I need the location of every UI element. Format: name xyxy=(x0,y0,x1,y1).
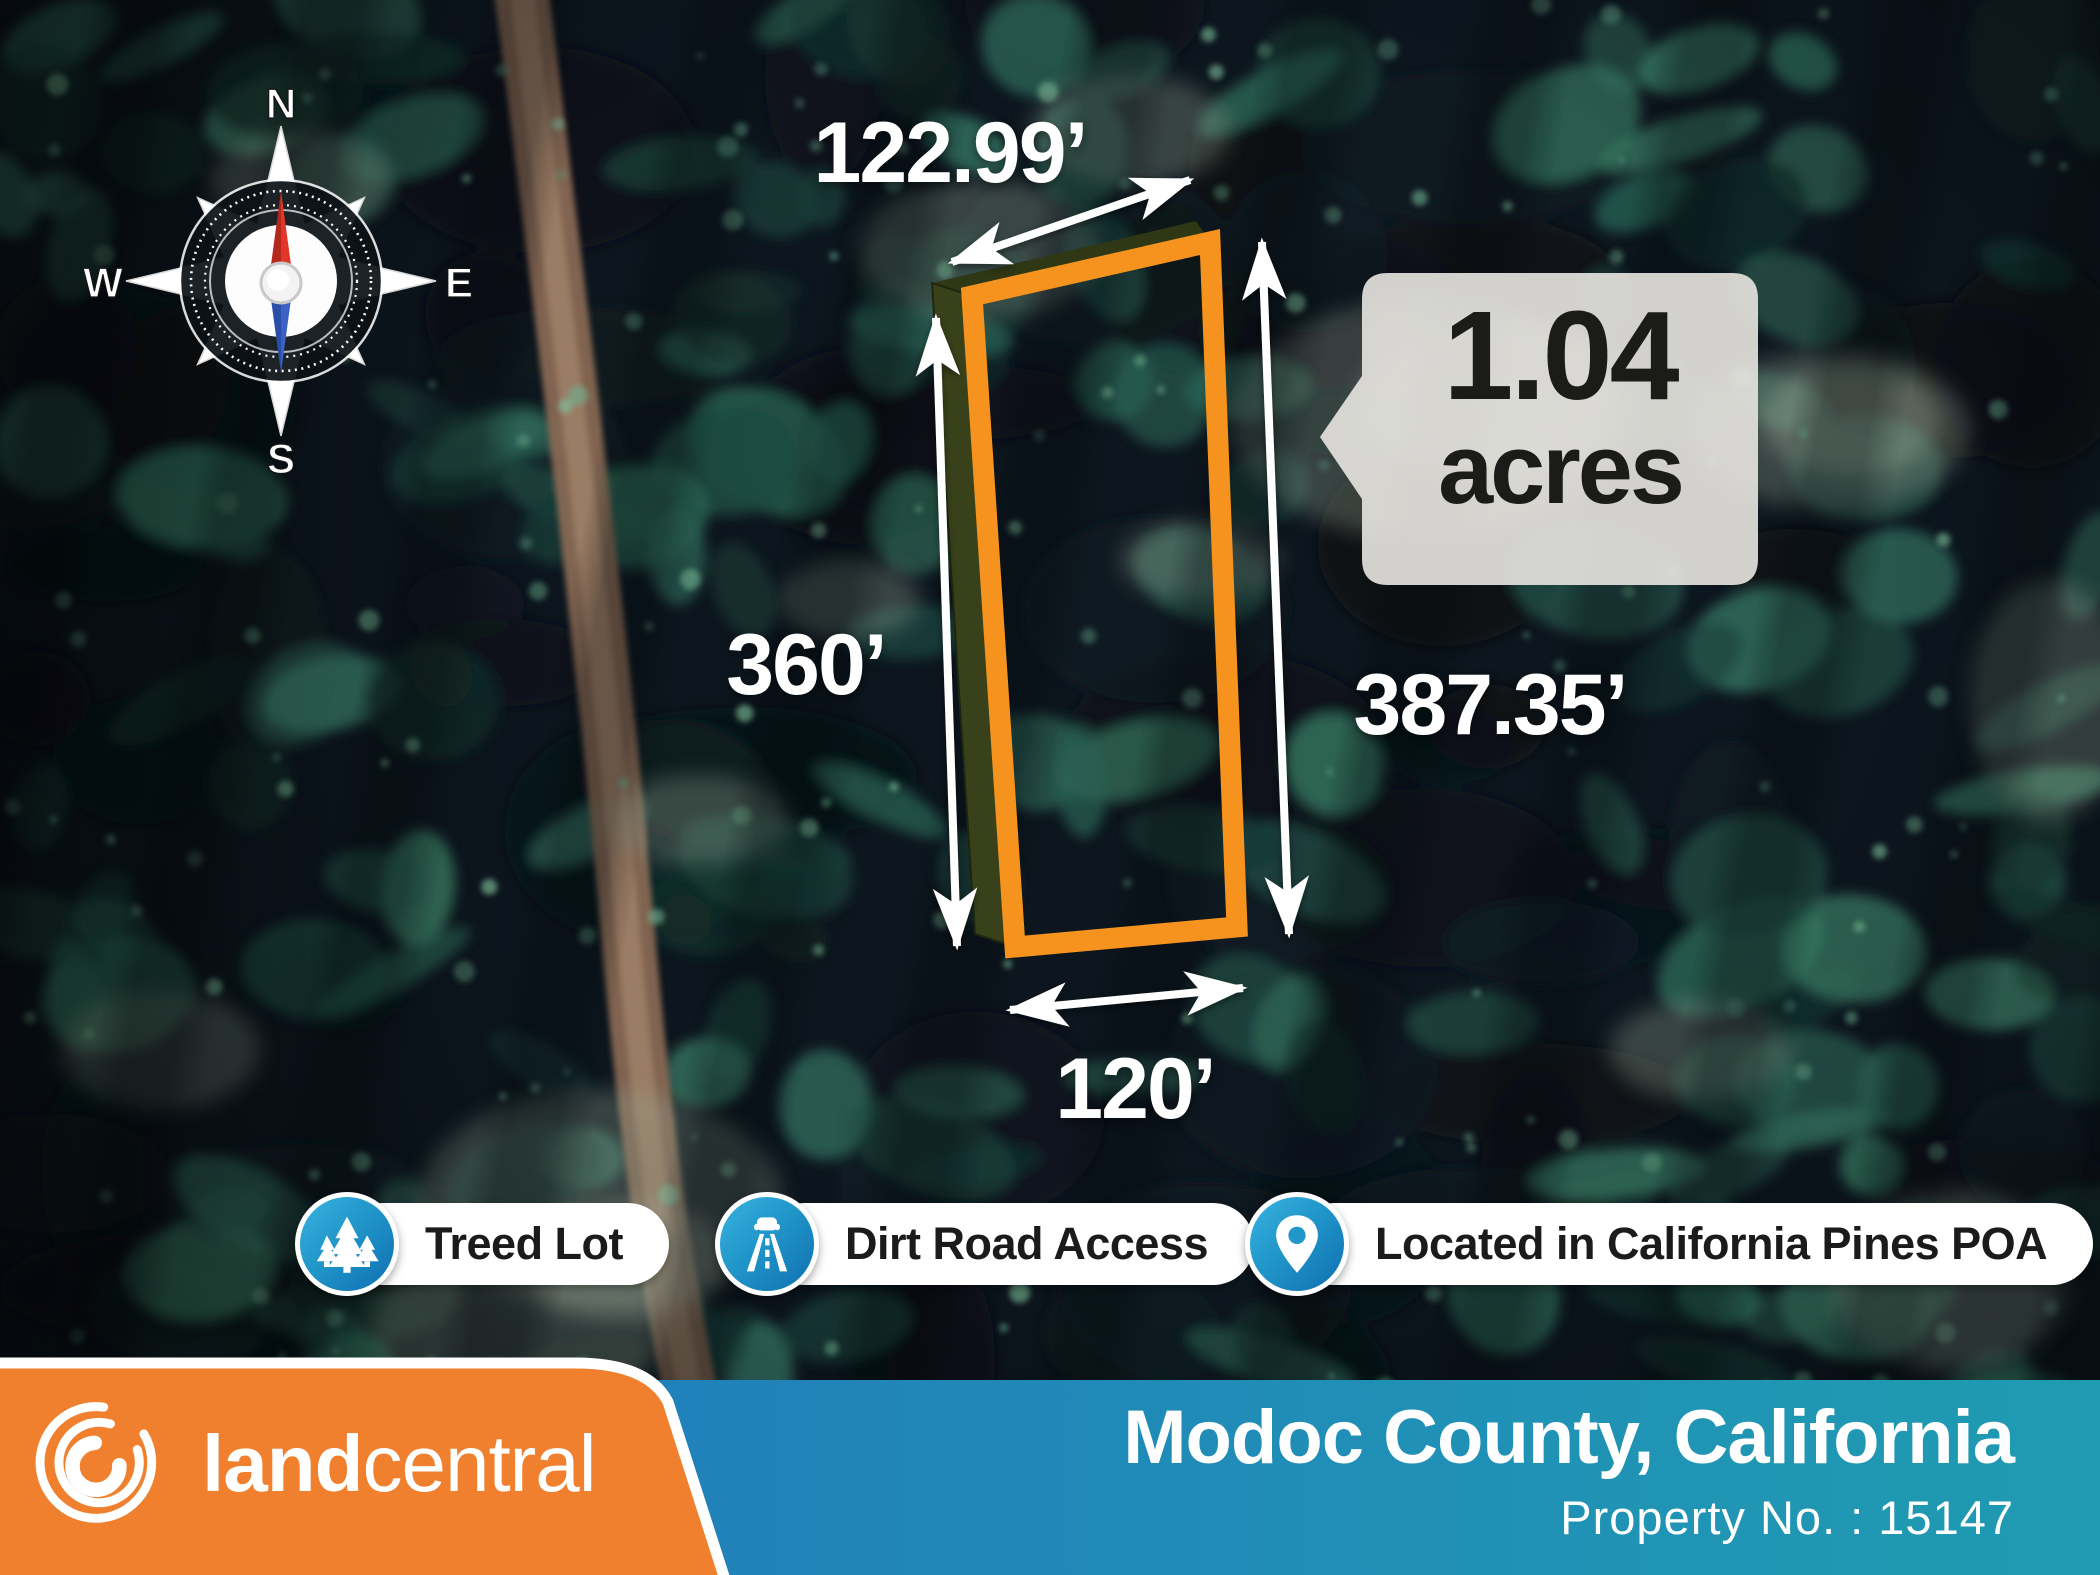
dirt-road-icon xyxy=(715,1192,819,1296)
pine-trees-icon xyxy=(295,1192,399,1296)
brand-wordmark: landcentral xyxy=(202,1420,596,1508)
dimension-label-left: 360’ xyxy=(656,616,956,715)
compass-s-label: S xyxy=(267,435,295,481)
property-flyer: N E S W 122.99’ 360’ 387.35’ 120’ 1.04 a… xyxy=(0,0,2100,1575)
feature-label: Located in California Pines POA xyxy=(1375,1218,2047,1270)
landcentral-logo-icon xyxy=(30,1396,164,1530)
feature-pill: Located in California Pines POA xyxy=(1293,1203,2093,1285)
dimension-label-bottom: 120’ xyxy=(980,1040,1290,1139)
dimension-label-right: 387.35’ xyxy=(1295,656,1685,755)
compass-w-label: W xyxy=(83,259,123,306)
feature-label: Dirt Road Access xyxy=(845,1218,1208,1270)
compass-n-label: N xyxy=(266,81,296,127)
compass-rose-icon: N E S W xyxy=(81,81,481,481)
county-title: Modoc County, California xyxy=(1123,1400,2014,1476)
acres-callout: 1.04 acres xyxy=(1362,296,1758,516)
acres-unit: acres xyxy=(1362,422,1758,516)
brand-light: central xyxy=(362,1419,595,1508)
feature-badge-location: Located in California Pines POA xyxy=(1245,1192,2093,1296)
feature-pill: Dirt Road Access xyxy=(763,1203,1254,1285)
acres-value: 1.04 xyxy=(1362,296,1758,416)
brand-bold: land xyxy=(202,1419,362,1508)
feature-badge-treed-lot: Treed Lot xyxy=(295,1192,669,1296)
compass-e-label: E xyxy=(445,259,473,306)
feature-badge-dirt-road: Dirt Road Access xyxy=(715,1192,1254,1296)
footer-property-info: Modoc County, California Property No. : … xyxy=(1123,1400,2014,1545)
property-number: Property No. : 15147 xyxy=(1123,1490,2014,1545)
feature-label: Treed Lot xyxy=(425,1218,623,1270)
dimension-label-top: 122.99’ xyxy=(700,104,1200,203)
location-pin-icon xyxy=(1245,1192,1349,1296)
